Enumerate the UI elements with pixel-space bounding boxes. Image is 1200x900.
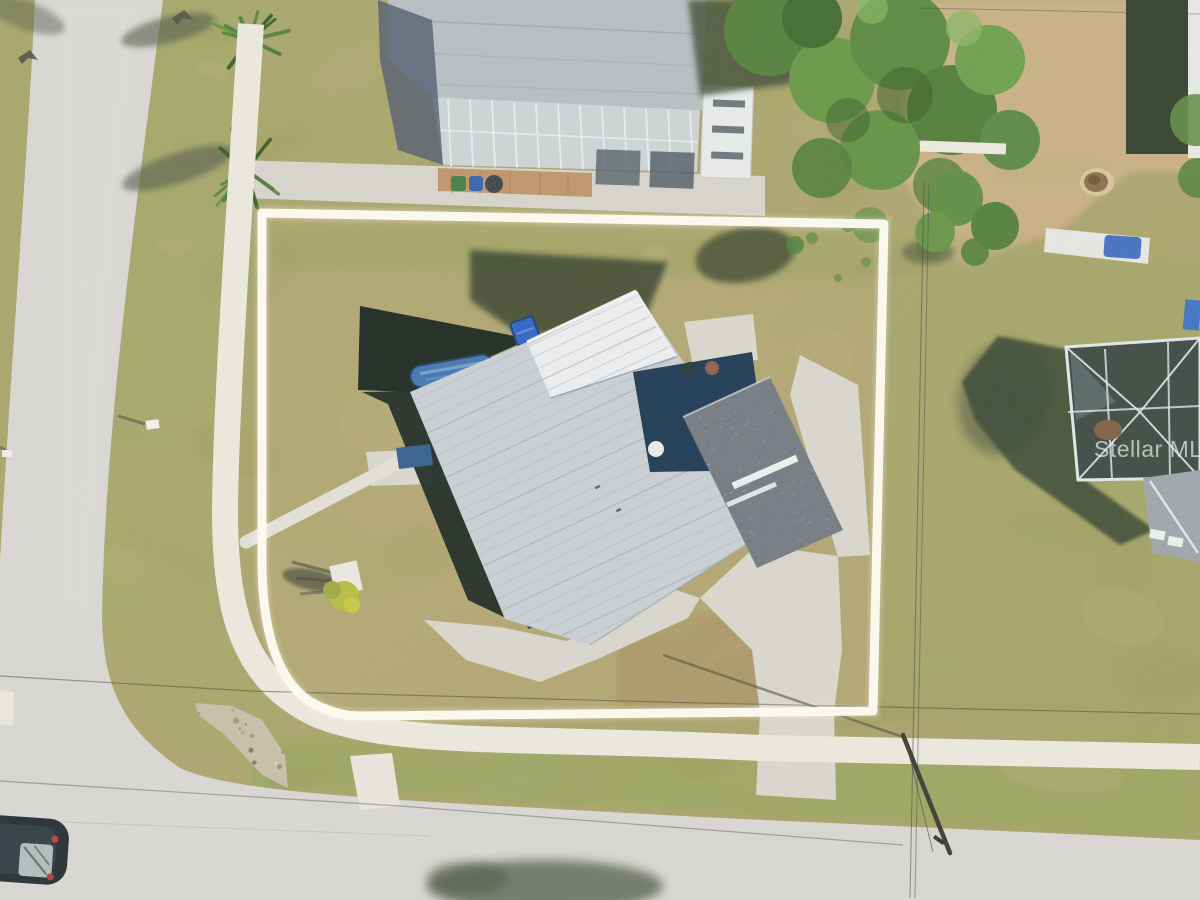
aerial-photo-canvas	[0, 0, 1200, 900]
photo-grain	[0, 0, 1200, 900]
aerial-photo: Stellar MLS	[0, 0, 1200, 900]
mls-watermark: Stellar MLS	[1094, 436, 1200, 463]
